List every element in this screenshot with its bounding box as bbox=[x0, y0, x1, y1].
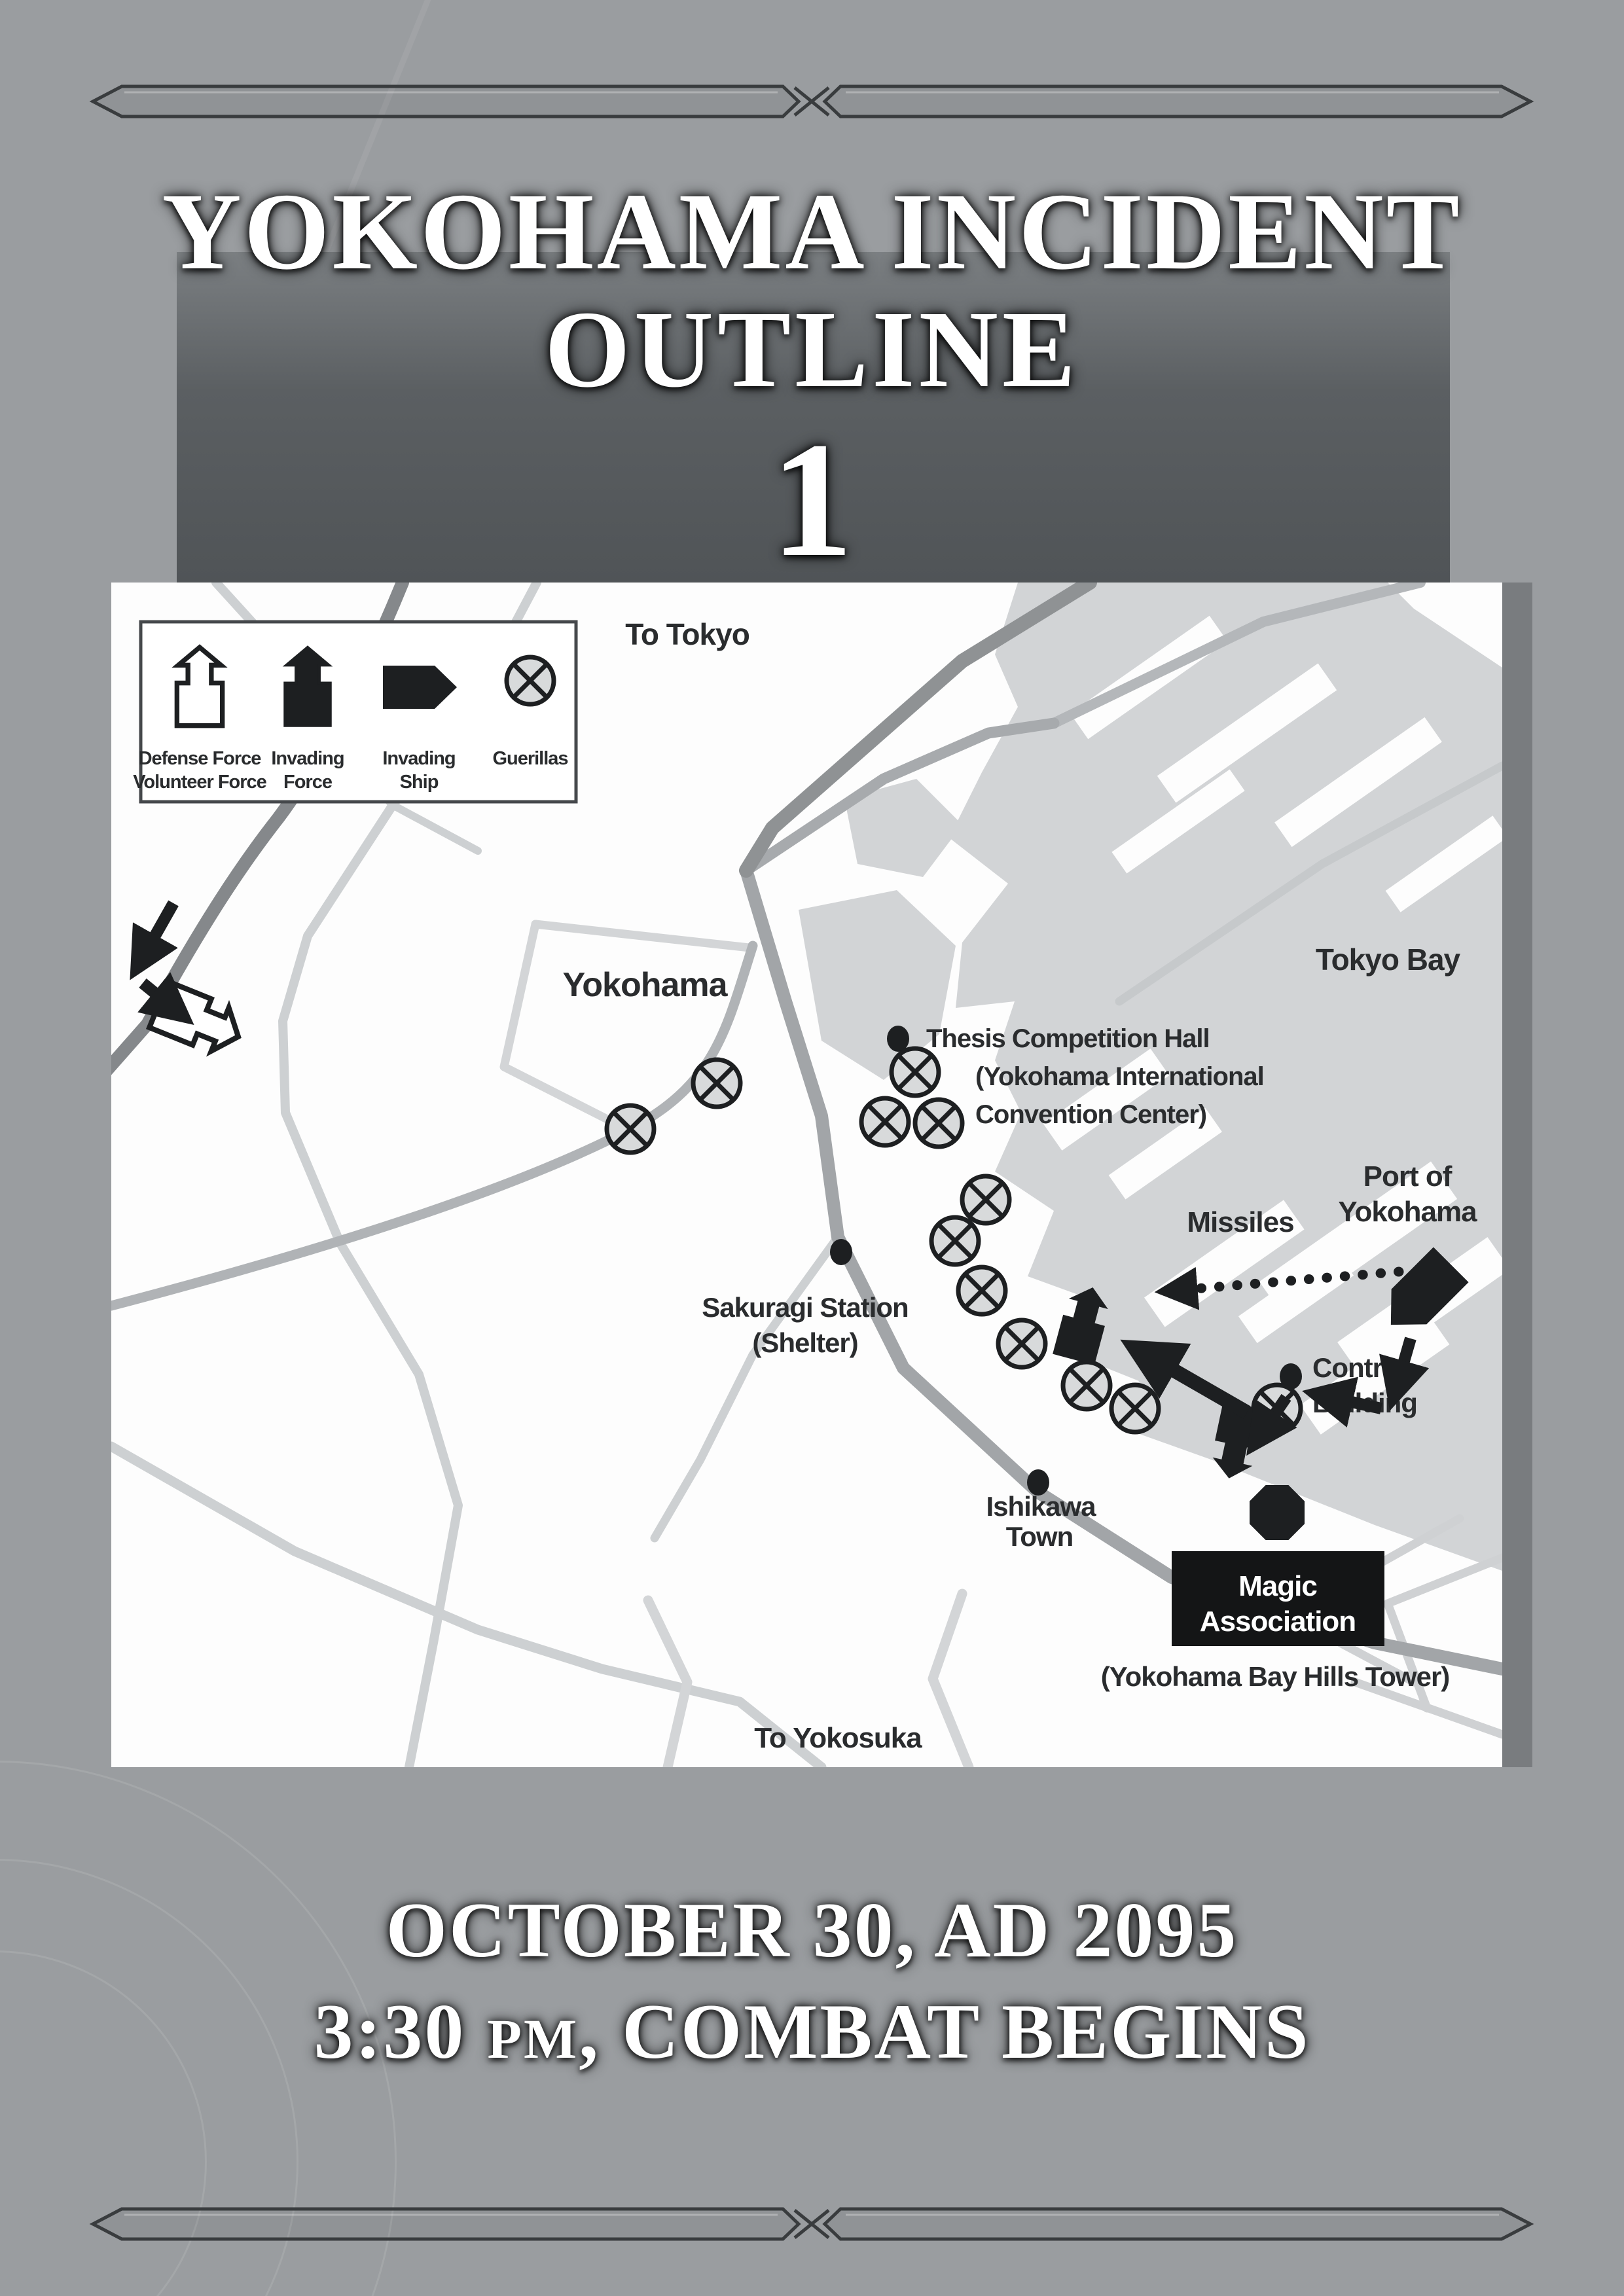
label-bay-hills-tower: (Yokohama Bay Hills Tower) bbox=[1101, 1661, 1450, 1692]
map-right-shadow bbox=[1502, 583, 1532, 1767]
legend-label: Force bbox=[283, 772, 333, 793]
caption-time-pre: 3:30 bbox=[314, 1988, 487, 2075]
thesis-hall-dot bbox=[887, 1026, 909, 1052]
label-to-yokosuka: To Yokosuka bbox=[754, 1722, 922, 1754]
invading-force-icon bbox=[285, 647, 330, 726]
guerillas-icon bbox=[507, 657, 554, 704]
label-magic-association: Magic bbox=[1238, 1570, 1317, 1602]
guerrilla-icon bbox=[1111, 1385, 1159, 1432]
guerrilla-icon bbox=[998, 1320, 1045, 1367]
guerrilla-icon bbox=[915, 1100, 962, 1147]
top-ornament-rule bbox=[85, 79, 1538, 124]
label-thesis-hall: (Yokohama International bbox=[975, 1062, 1264, 1091]
guerrilla-icon bbox=[958, 1267, 1005, 1314]
label-control-building: Control bbox=[1312, 1352, 1405, 1383]
caption-time-post: , COMBAT BEGINS bbox=[579, 1988, 1310, 2075]
guerrilla-icon bbox=[962, 1176, 1009, 1223]
map-canvas: Defense Force Volunteer Force Invading F… bbox=[111, 583, 1502, 1767]
label-missiles: Missiles bbox=[1187, 1206, 1293, 1238]
legend-label: Volunteer Force bbox=[133, 772, 266, 793]
map-legend: Defense Force Volunteer Force Invading F… bbox=[133, 622, 576, 802]
legend-label: Invading bbox=[382, 748, 455, 769]
sakuragi-station-dot bbox=[830, 1239, 852, 1265]
guerrilla-icon bbox=[1063, 1362, 1110, 1409]
guerrilla-icon bbox=[931, 1217, 979, 1265]
guerrilla-icon bbox=[892, 1049, 939, 1096]
ishikawa-town-dot bbox=[1027, 1469, 1049, 1496]
label-sakuragi-station: Sakuragi Station bbox=[702, 1292, 908, 1323]
page-title-line2: OUTLINE bbox=[0, 287, 1624, 413]
bottom-ornament-rule bbox=[85, 2201, 1538, 2247]
caption-time-pm: PM bbox=[487, 2007, 579, 2070]
label-sakuragi-station: (Shelter) bbox=[752, 1327, 857, 1358]
magic-association-octagon-icon bbox=[1250, 1485, 1305, 1540]
defense-advance-arrow bbox=[140, 903, 173, 962]
label-port-of-yokohama: Port of bbox=[1363, 1160, 1453, 1193]
legend-label: Ship bbox=[400, 772, 439, 793]
label-to-tokyo: To Tokyo bbox=[625, 617, 749, 651]
label-magic-association: Association bbox=[1200, 1605, 1356, 1638]
label-port-of-yokohama: Yokohama bbox=[1338, 1196, 1477, 1228]
guerrilla-icon bbox=[861, 1098, 909, 1145]
defense-force-icon bbox=[177, 647, 222, 726]
label-ishikawa-town: Town bbox=[1006, 1521, 1074, 1552]
caption-time: 3:30 PM, COMBAT BEGINS bbox=[0, 1986, 1624, 2077]
page-title-number: 1 bbox=[0, 404, 1624, 595]
page-title-line1: YOKOHAMA INCIDENT bbox=[0, 169, 1624, 295]
label-thesis-hall: Thesis Competition Hall bbox=[926, 1024, 1210, 1053]
legend-label: Invading bbox=[271, 748, 344, 769]
legend-label: Defense Force bbox=[139, 748, 262, 769]
label-tokyo-bay: Tokyo Bay bbox=[1316, 942, 1461, 977]
page: YOKOHAMA INCIDENT OUTLINE 1 bbox=[0, 0, 1624, 2296]
label-yokohama: Yokohama bbox=[562, 966, 728, 1004]
label-ishikawa-town: Ishikawa bbox=[986, 1491, 1096, 1522]
yokohama-map: Defense Force Volunteer Force Invading F… bbox=[111, 583, 1502, 1767]
guerrilla-icon bbox=[693, 1060, 740, 1107]
guerrilla-icon bbox=[607, 1105, 654, 1153]
caption-date: OCTOBER 30, AD 2095 bbox=[0, 1885, 1624, 1975]
label-thesis-hall: Convention Center) bbox=[975, 1100, 1206, 1129]
legend-label: Guerillas bbox=[492, 748, 568, 769]
